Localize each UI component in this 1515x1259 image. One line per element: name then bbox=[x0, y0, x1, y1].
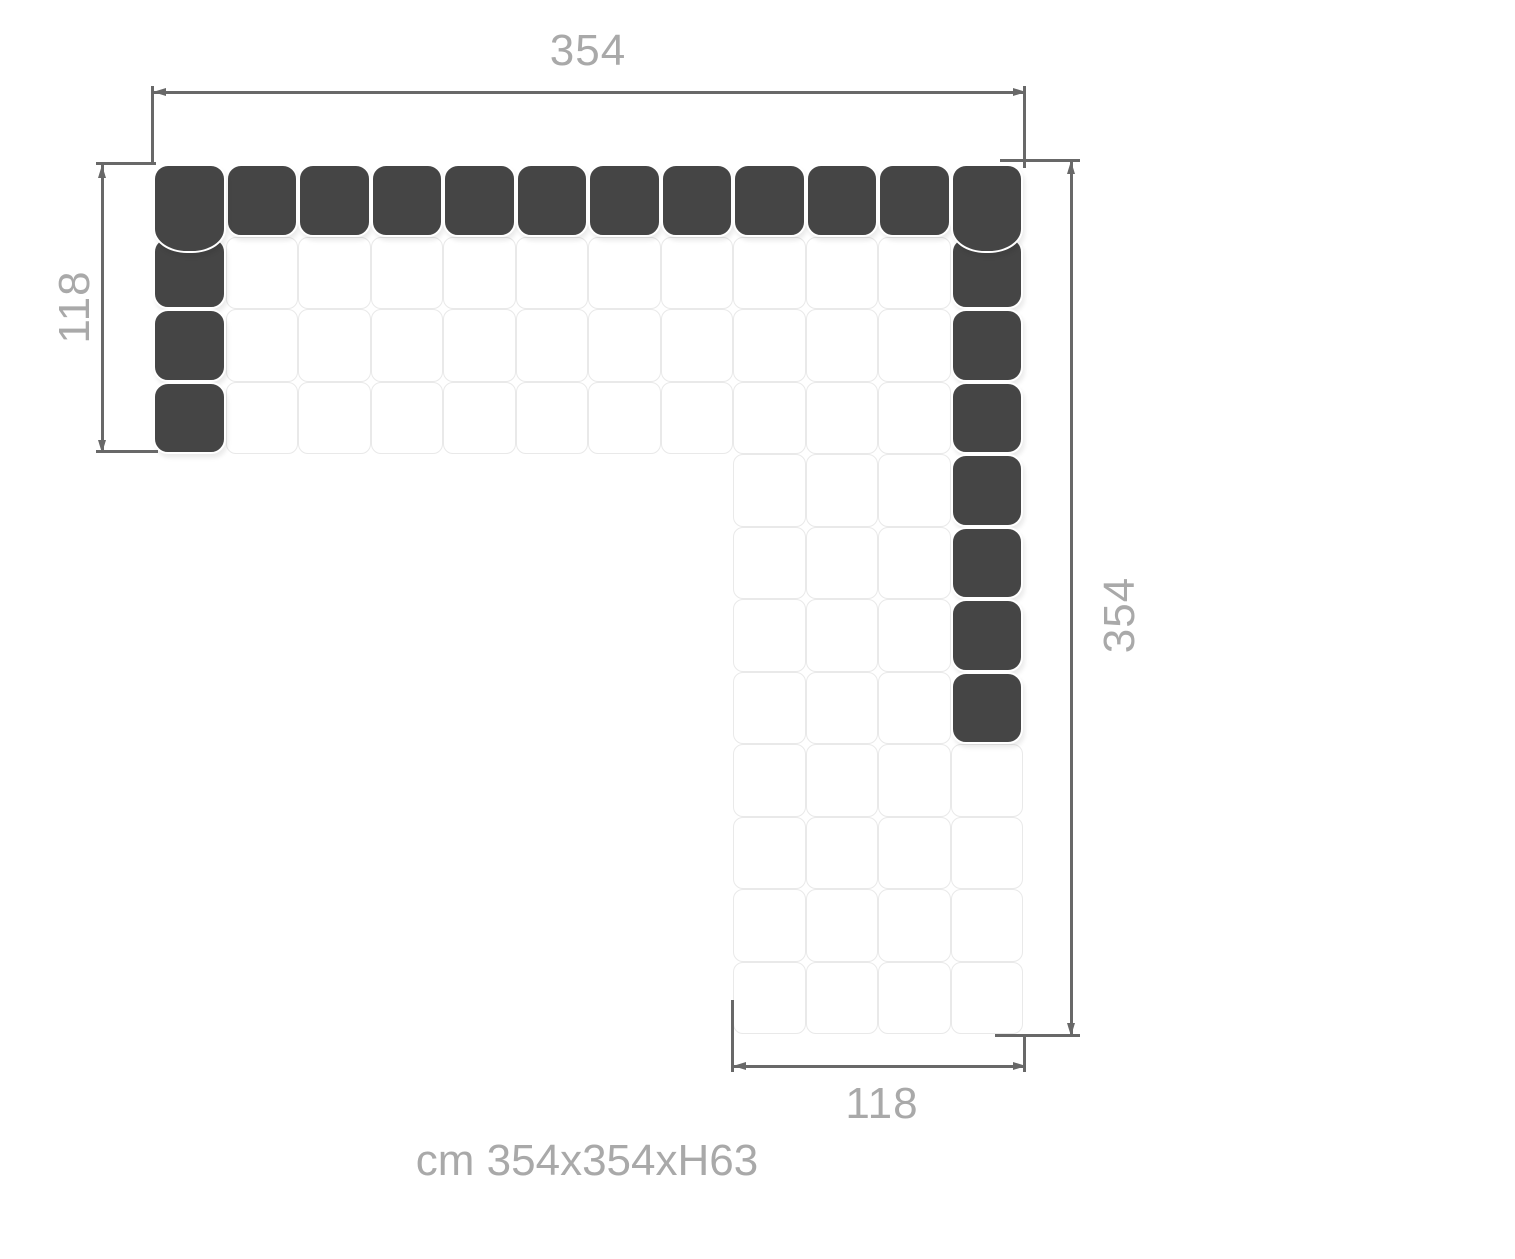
backrest-cushion-module bbox=[951, 454, 1024, 527]
backrest-cushion-module bbox=[661, 164, 734, 237]
backrest-cushion-module bbox=[443, 164, 516, 237]
seat-module bbox=[371, 237, 444, 310]
seat-module bbox=[806, 309, 879, 382]
seat-module bbox=[226, 382, 299, 455]
seat-module bbox=[226, 309, 299, 382]
seat-module bbox=[806, 817, 879, 890]
seat-module bbox=[806, 237, 879, 310]
extension-line bbox=[1023, 86, 1026, 168]
seat-module bbox=[733, 599, 806, 672]
seat-module bbox=[878, 527, 951, 600]
seat-module bbox=[733, 382, 806, 455]
seat-module bbox=[951, 817, 1024, 890]
seat-module bbox=[878, 672, 951, 745]
seat-module bbox=[806, 744, 879, 817]
dimension-line bbox=[101, 165, 104, 453]
dimension-label-left: 118 bbox=[53, 207, 97, 407]
backrest-cushion-module bbox=[588, 164, 661, 237]
seat-module bbox=[733, 527, 806, 600]
seat-module bbox=[298, 309, 371, 382]
seat-module bbox=[878, 382, 951, 455]
seat-module bbox=[371, 309, 444, 382]
seat-module bbox=[733, 744, 806, 817]
backrest-cushion-module bbox=[951, 599, 1024, 672]
seat-module bbox=[298, 237, 371, 310]
backrest-cushion-module bbox=[951, 672, 1024, 745]
seat-module bbox=[661, 382, 734, 455]
seat-module bbox=[878, 889, 951, 962]
seat-module bbox=[661, 237, 734, 310]
backrest-cushion-module bbox=[298, 164, 371, 237]
seat-module bbox=[733, 672, 806, 745]
seat-module bbox=[516, 237, 589, 310]
backrest-cushion-module bbox=[371, 164, 444, 237]
dimension-label-top: 354 bbox=[488, 29, 688, 73]
seat-module bbox=[733, 817, 806, 890]
seat-module bbox=[371, 382, 444, 455]
seat-module bbox=[806, 599, 879, 672]
backrest-cushion-module bbox=[153, 309, 226, 382]
seat-module bbox=[516, 309, 589, 382]
dimension-label-right: 354 bbox=[1098, 515, 1142, 715]
seat-module bbox=[878, 309, 951, 382]
size-caption: cm 354x354xH63 bbox=[387, 1139, 787, 1183]
arrowhead-left-icon bbox=[733, 1062, 746, 1070]
seat-module bbox=[806, 382, 879, 455]
seat-module bbox=[443, 237, 516, 310]
seat-module bbox=[951, 889, 1024, 962]
seat-module bbox=[733, 309, 806, 382]
seat-module bbox=[806, 889, 879, 962]
seat-module bbox=[951, 962, 1024, 1035]
seat-module bbox=[733, 237, 806, 310]
seat-module bbox=[878, 454, 951, 527]
extension-line bbox=[151, 86, 154, 164]
backrest-cushion-module bbox=[153, 382, 226, 455]
arrowhead-up-icon bbox=[1067, 161, 1075, 174]
seat-module bbox=[806, 527, 879, 600]
seat-module bbox=[588, 237, 661, 310]
dimension-line bbox=[1070, 161, 1073, 1036]
dimension-line bbox=[153, 91, 1026, 94]
dimension-label-bottom: 118 bbox=[782, 1082, 982, 1126]
backrest-cushion-module bbox=[806, 164, 879, 237]
backrest-cushion-module bbox=[153, 164, 226, 253]
seat-module bbox=[878, 237, 951, 310]
seat-module bbox=[878, 599, 951, 672]
seat-module bbox=[588, 309, 661, 382]
seat-module bbox=[878, 817, 951, 890]
seat-module bbox=[661, 309, 734, 382]
backrest-cushion-module bbox=[951, 382, 1024, 455]
seat-module bbox=[226, 237, 299, 310]
seat-module bbox=[733, 454, 806, 527]
dimension-line bbox=[733, 1065, 1026, 1068]
seat-module bbox=[878, 962, 951, 1035]
backrest-cushion-module bbox=[951, 527, 1024, 600]
seat-module bbox=[806, 672, 879, 745]
seat-module bbox=[733, 962, 806, 1035]
seat-module bbox=[443, 382, 516, 455]
sofa-grid bbox=[153, 164, 1024, 1035]
backrest-cushion-module bbox=[878, 164, 951, 237]
arrowhead-right-icon bbox=[1013, 88, 1026, 96]
backrest-cushion-module bbox=[733, 164, 806, 237]
backrest-cushion-module bbox=[951, 164, 1024, 253]
seat-module bbox=[443, 309, 516, 382]
seat-module bbox=[733, 889, 806, 962]
backrest-cushion-module bbox=[951, 309, 1024, 382]
seat-module bbox=[516, 382, 589, 455]
seat-module bbox=[951, 744, 1024, 817]
seat-module bbox=[588, 382, 661, 455]
seat-module bbox=[806, 962, 879, 1035]
backrest-cushion-module bbox=[226, 164, 299, 237]
arrowhead-down-icon bbox=[98, 440, 106, 453]
arrowhead-down-icon bbox=[1067, 1023, 1075, 1036]
arrowhead-right-icon bbox=[1013, 1062, 1026, 1070]
arrowhead-left-icon bbox=[153, 88, 166, 96]
seat-module bbox=[878, 744, 951, 817]
backrest-cushion-module bbox=[516, 164, 589, 237]
sofa-dimension-diagram: 354 118 354 118 cm 354x354xH63 bbox=[0, 0, 1515, 1259]
arrowhead-up-icon bbox=[98, 165, 106, 178]
seat-module bbox=[806, 454, 879, 527]
seat-module bbox=[298, 382, 371, 455]
